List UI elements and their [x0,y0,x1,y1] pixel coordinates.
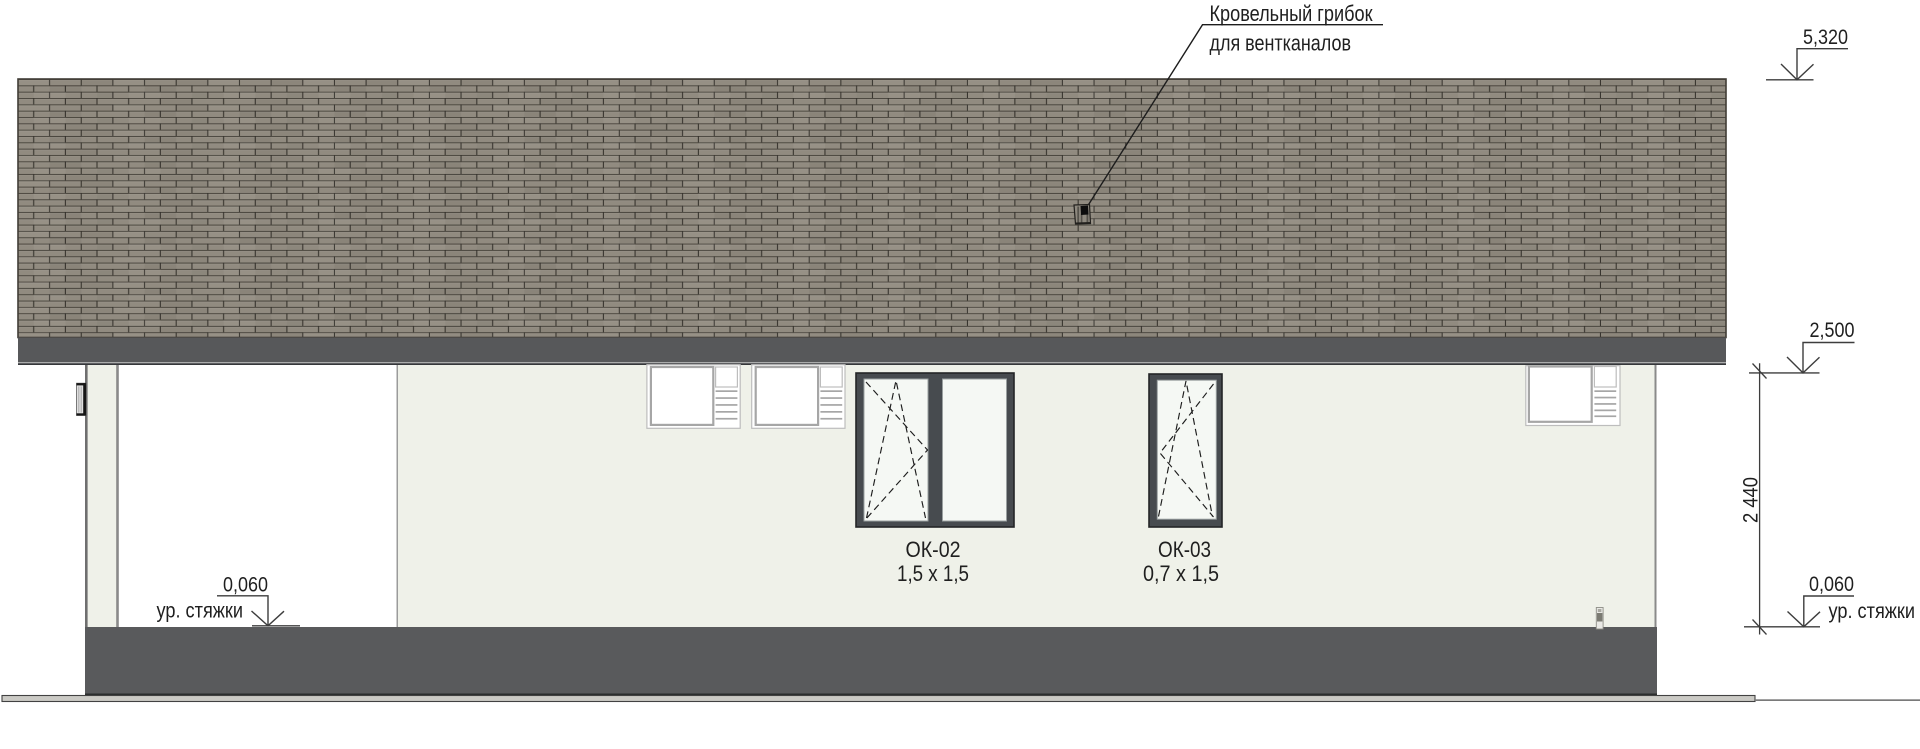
svg-text:ОК-02: ОК-02 [906,537,961,562]
svg-text:для вентканалов: для вентканалов [1210,31,1352,56]
svg-text:0,060: 0,060 [223,574,268,597]
svg-text:ур. стяжки: ур. стяжки [1829,600,1916,623]
svg-text:5,320: 5,320 [1803,26,1848,49]
svg-text:2,500: 2,500 [1810,319,1855,342]
svg-text:0,060: 0,060 [1809,573,1854,596]
svg-text:2 440: 2 440 [1740,477,1763,523]
svg-text:1,5 х 1,5: 1,5 х 1,5 [897,561,969,586]
svg-text:ОК-03: ОК-03 [1158,537,1211,562]
svg-text:0,7 х 1,5: 0,7 х 1,5 [1143,561,1219,586]
svg-text:Кровельный грибок: Кровельный грибок [1210,1,1373,26]
svg-text:ур. стяжки: ур. стяжки [157,600,244,623]
